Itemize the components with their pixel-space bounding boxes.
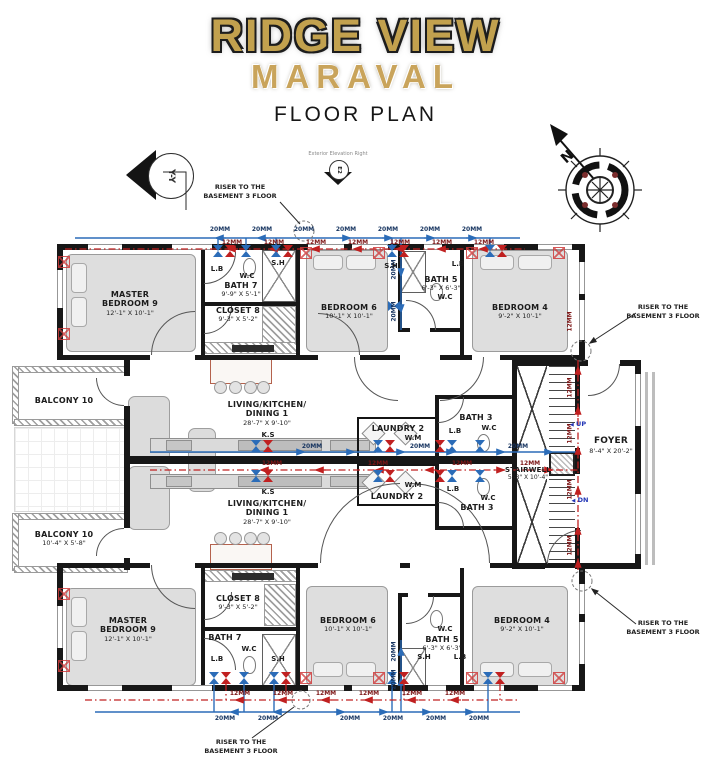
room-name: BEDROOM 4 xyxy=(475,303,565,312)
balcony-top-rail-left xyxy=(12,366,19,424)
room-dims: 28'-7" X 9'-10" xyxy=(212,518,322,527)
window xyxy=(635,494,641,554)
pipe-size-label: 20MM xyxy=(378,226,398,233)
fixture-label-wc: W.C xyxy=(482,424,497,432)
corner-marker xyxy=(58,328,70,340)
stair-landing-upper xyxy=(517,366,547,452)
room-dims: 12'-1" X 10'-1" xyxy=(87,309,173,318)
pipe-size-label: 12MM xyxy=(402,690,422,697)
room-dims: 9'-2" X 10'-1" xyxy=(477,625,567,634)
page-caption: FLOOR PLAN xyxy=(0,103,711,127)
window xyxy=(57,606,63,648)
room-label-bath-7-top: BATH 7 9'-9" X 5'-1" xyxy=(206,281,276,299)
room-name: MASTER BEDROOM 9 xyxy=(87,290,173,309)
bed-pillow xyxy=(518,662,552,677)
wall xyxy=(296,248,300,360)
pipe-size-label: 20MM xyxy=(294,226,314,233)
hot-valve xyxy=(221,672,231,684)
pipe-size-label: 20MM xyxy=(210,226,230,233)
pipe-size-label: 20MM xyxy=(508,443,528,450)
corner-marker xyxy=(58,588,70,600)
room-dims: 6'-3" X 6'-3" xyxy=(410,644,474,653)
dining-chair xyxy=(229,532,242,545)
room-label-foyer: FOYER 8'-4" X 20'-2" xyxy=(579,436,643,455)
fixture-label-lb: L.B xyxy=(211,265,223,273)
cold-valve xyxy=(271,245,281,257)
room-name: BEDROOM 4 xyxy=(477,616,567,625)
hot-valve xyxy=(225,245,235,257)
hot-valve xyxy=(497,245,507,257)
door-arc xyxy=(406,300,436,330)
window xyxy=(579,622,585,664)
room-dims: 9'-3" X 5'-2" xyxy=(203,603,273,612)
cold-valve xyxy=(239,672,249,684)
bed-pillow xyxy=(346,255,376,270)
balcony-terrace xyxy=(14,427,126,512)
pipe-size-label: 20MM xyxy=(258,715,278,722)
window xyxy=(474,685,504,691)
cold-valve xyxy=(475,440,485,452)
wall xyxy=(583,563,641,569)
corner-marker xyxy=(300,672,312,684)
hot-valve xyxy=(399,672,409,684)
cold-valve xyxy=(483,672,493,684)
room-label-closet-8-top: CLOSET 8 9'-3" X 5'-2" xyxy=(203,306,273,324)
wall xyxy=(57,355,130,360)
wall xyxy=(398,248,402,332)
cold-valve xyxy=(241,245,251,257)
cold-valve xyxy=(387,245,397,257)
stair-dn-label: ◀ DN xyxy=(572,496,589,504)
pipe-size-label: 12MM xyxy=(567,311,574,331)
room-name: LAUNDRY 2 xyxy=(352,492,442,501)
fixture-label-sh: S.H xyxy=(384,262,398,270)
hot-valve xyxy=(385,470,395,482)
room-label-bath-3-bottom: BATH 3 xyxy=(447,503,507,512)
window xyxy=(172,244,212,250)
riser-note-line: BASEMENT 3 FLOOR xyxy=(203,192,276,201)
elevation-marker-caption: Exterior Elevation Right xyxy=(308,151,367,157)
pipe-size-label: 12MM xyxy=(452,460,472,467)
corner-marker xyxy=(373,247,385,259)
dn-text: DN xyxy=(578,496,589,504)
wall xyxy=(201,627,298,631)
riser-note-line: RISER TO THE xyxy=(203,183,276,192)
riser-note-line: RISER TO THE xyxy=(204,738,277,747)
room-name: BALCONY 10 xyxy=(9,396,119,405)
dining-chair xyxy=(244,532,257,545)
room-dims: 9'-3" X 5'-2" xyxy=(203,315,273,324)
hot-valve xyxy=(399,245,409,257)
room-name: BATH 3 xyxy=(447,503,507,512)
fixture-label-wc: W.C xyxy=(438,293,453,301)
cold-valve xyxy=(373,440,383,452)
room-label-master-bedroom-9-top: MASTER BEDROOM 9 12'-1" X 10'-1" xyxy=(87,290,173,318)
door-arc xyxy=(354,357,398,401)
room-name: CLOSET 8 xyxy=(203,594,273,603)
pipe-size-label: 12MM xyxy=(359,690,379,697)
hot-valve xyxy=(435,470,445,482)
wall xyxy=(130,355,150,360)
fixture-label-wm: W.M xyxy=(405,434,422,442)
corner-marker xyxy=(58,660,70,672)
pipe-size-label: 12MM xyxy=(262,460,282,467)
dining-chair xyxy=(257,381,270,394)
riser-note-line: BASEMENT 3 FLOOR xyxy=(626,628,699,637)
corner-marker xyxy=(58,256,70,268)
room-name: LIVING/KITCHEN/ xyxy=(212,400,322,409)
room-name: DINING 1 xyxy=(212,508,322,517)
window xyxy=(172,685,212,691)
pipe-size-label: 20MM xyxy=(336,226,356,233)
room-label-bedroom-6-top: BEDROOM 6 10'-1" X 10'-1" xyxy=(304,303,394,321)
room-name: BATH 7 xyxy=(195,633,255,642)
stair-up-label: ◀ UP xyxy=(570,420,586,428)
fixture-label-wc: W.C xyxy=(438,625,453,633)
window xyxy=(57,270,63,308)
room-name: BATH 5 xyxy=(410,635,474,644)
hot-valve xyxy=(435,440,445,452)
riser-note-bottom-right: RISER TO THE BASEMENT 3 FLOOR xyxy=(626,619,699,637)
room-name: BEDROOM 6 xyxy=(304,303,394,312)
fixture-label-ks: K.S xyxy=(261,431,274,439)
fixture-label-sh: S.H xyxy=(271,655,285,663)
floor-plan-page: RIDGE VIEW MARAVAL FLOOR PLAN Y-Y Exteri… xyxy=(0,0,711,768)
left-arrow-icon: ◀ xyxy=(570,422,574,428)
room-label-balcony-10-bottom: BALCONY 10 10'-4" X 5'-8" xyxy=(9,530,119,548)
fixture-label-ks: K.S xyxy=(261,488,274,496)
pipe-size-label: 12MM xyxy=(567,377,574,397)
pipe-size-label: 12MM xyxy=(567,535,574,555)
wall xyxy=(500,355,583,360)
kitchen-sink xyxy=(166,440,192,451)
hot-valve xyxy=(263,440,273,452)
riser-note-line: BASEMENT 3 FLOOR xyxy=(626,312,699,321)
corner-marker xyxy=(466,672,478,684)
riser-note-top-right: RISER TO THE BASEMENT 3 FLOOR xyxy=(626,303,699,321)
window xyxy=(579,584,585,614)
room-label-bath-7-bottom: BATH 7 xyxy=(195,633,255,642)
wall xyxy=(130,563,150,568)
wall xyxy=(195,355,318,360)
dining-chair xyxy=(244,381,257,394)
room-dims: 12'-1" X 10'-1" xyxy=(85,635,171,644)
room-name: MASTER BEDROOM 9 xyxy=(85,616,171,635)
room-name: BALCONY 10 xyxy=(9,530,119,539)
room-dims: 10'-4" X 5'-8" xyxy=(9,539,119,548)
room-dims: 9'-2" X 10'-1" xyxy=(475,312,565,321)
pipe-size-label: 12MM xyxy=(222,239,242,246)
pipe-size-label: 12MM xyxy=(474,239,494,246)
fixture-label-lb: L.B xyxy=(449,427,461,435)
room-name: CLOSET 8 xyxy=(203,306,273,315)
cold-valve xyxy=(213,245,223,257)
wall xyxy=(460,568,464,690)
pipe-size-label: 12MM xyxy=(264,239,284,246)
room-dims: 5'-8" X 10'-4" xyxy=(490,474,566,482)
room-dims: 8'-4" X 20'-2" xyxy=(579,447,643,456)
riser-note-line: RISER TO THE xyxy=(626,303,699,312)
room-name: LIVING/KITCHEN/ xyxy=(212,499,322,508)
wall xyxy=(195,563,318,568)
cold-valve xyxy=(251,470,261,482)
room-name: STAIRWELL xyxy=(490,466,566,474)
pipe-size-label: 20MM xyxy=(340,715,360,722)
pipe-size-label: 12MM xyxy=(230,690,250,697)
pipe-size-label: 20MM xyxy=(426,715,446,722)
riser-note-line: BASEMENT 3 FLOOR xyxy=(204,747,277,756)
door-arc xyxy=(588,364,620,396)
dining-chair xyxy=(229,381,242,394)
riser-note-top-left: RISER TO THE BASEMENT 3 FLOOR xyxy=(203,183,276,201)
room-dims: 28'-7" X 9'-10" xyxy=(212,419,322,428)
fixture-label-wc: W.C xyxy=(242,645,257,653)
section-marker-label: Y-Y xyxy=(166,169,176,183)
room-label-bedroom-6-bottom: BEDROOM 6 10'-1" X 10'-1" xyxy=(303,616,393,634)
room-dims: 10'-1" X 10'-1" xyxy=(303,625,393,634)
closet-shelf xyxy=(232,345,274,352)
fixture-label-wc: W.C xyxy=(481,494,496,502)
bed-pillow xyxy=(518,255,552,270)
entry-step xyxy=(645,372,648,565)
hot-valve xyxy=(263,470,273,482)
window xyxy=(88,685,122,691)
hot-valve xyxy=(495,672,505,684)
hot-valve xyxy=(281,672,291,684)
pipe-size-label: 20MM xyxy=(302,443,322,450)
wall xyxy=(512,360,517,569)
balcony-bottom-rail-top xyxy=(14,513,128,520)
elevation-marker-circle: E2 xyxy=(329,160,349,180)
pipe-size-label: 20MM xyxy=(391,641,398,661)
pipe-size-label: 12MM xyxy=(390,239,410,246)
cold-valve xyxy=(447,440,457,452)
riser-note-bottom: RISER TO THE BASEMENT 3 FLOOR xyxy=(204,738,277,756)
wall xyxy=(57,563,130,568)
dining-chair xyxy=(214,381,227,394)
cold-valve xyxy=(447,470,457,482)
pipe-size-label: 12MM xyxy=(432,239,452,246)
room-label-balcony-10-top: BALCONY 10 xyxy=(9,396,119,405)
room-label-stairwell: STAIRWELL 5'-8" X 10'-4" xyxy=(490,466,566,482)
bed-pillow xyxy=(480,255,514,270)
up-text: UP xyxy=(576,420,586,428)
room-label-living-bottom: LIVING/KITCHEN/ DINING 1 28'-7" X 9'-10" xyxy=(212,499,322,527)
pipe-size-label: 12MM xyxy=(348,239,368,246)
cold-valve xyxy=(475,470,485,482)
fixture-label-lb: L.B xyxy=(447,485,459,493)
room-name: FOYER xyxy=(579,436,643,447)
hot-valve xyxy=(283,245,293,257)
pipe-size-label: 12MM xyxy=(273,690,293,697)
page-title: RIDGE VIEW xyxy=(0,10,711,62)
stair-landing-lower xyxy=(517,479,547,565)
room-label-bath-5-top: BATH 5 6'-3" X 6'-3" xyxy=(409,275,473,293)
fixture-label-wm: W.M xyxy=(405,481,422,489)
room-label-closet-8-bottom: CLOSET 8 9'-3" X 5'-2" xyxy=(203,594,273,612)
kitchen-sink xyxy=(166,476,192,487)
room-label-bedroom-4-bottom: BEDROOM 4 9'-2" X 10'-1" xyxy=(477,616,567,634)
window xyxy=(635,374,641,426)
compass-north-label: N xyxy=(558,147,577,167)
wall xyxy=(400,563,410,568)
cold-valve xyxy=(209,672,219,684)
pipe-size-label: 20MM xyxy=(215,715,235,722)
balcony-top-rail xyxy=(14,366,128,373)
fixture-label-wc: W.C xyxy=(240,272,255,280)
corner-marker xyxy=(373,672,385,684)
room-dims: 9'-9" X 5'-1" xyxy=(206,290,276,299)
room-label-bath-5-bottom: BATH 5 6'-3" X 6'-3" xyxy=(410,635,474,653)
cold-valve xyxy=(485,245,495,257)
room-label-bath-3-top: BATH 3 xyxy=(446,413,506,422)
room-dims: 10'-1" X 10'-1" xyxy=(304,312,394,321)
corner-marker xyxy=(553,672,565,684)
window xyxy=(88,244,122,250)
cold-valve xyxy=(373,470,383,482)
fixture-label-sh: S.H xyxy=(271,259,285,267)
fixture-label-sh: S.H xyxy=(417,653,431,661)
pipe-size-label: 20MM xyxy=(383,715,403,722)
section-marker-circle: Y-Y xyxy=(148,153,194,199)
window xyxy=(579,262,585,294)
cold-valve xyxy=(269,672,279,684)
fixture-label-lb: L.B xyxy=(454,653,466,661)
bed-pillow xyxy=(313,662,343,677)
room-label-laundry-2-bottom: LAUNDRY 2 xyxy=(352,492,442,501)
room-name: BEDROOM 6 xyxy=(303,616,393,625)
corner-marker xyxy=(553,247,565,259)
hot-valve xyxy=(385,440,395,452)
dining-chair xyxy=(214,532,227,545)
bed-pillow xyxy=(71,297,87,327)
pipe-size-label: 20MM xyxy=(420,226,440,233)
elevation-marker-label: E2 xyxy=(336,166,342,174)
window xyxy=(538,685,572,691)
bed-pillow xyxy=(313,255,343,270)
room-name: LAUNDRY 2 xyxy=(353,424,443,433)
entry-step xyxy=(652,372,655,565)
pipe-size-label: 12MM xyxy=(445,690,465,697)
room-label-living-top: LIVING/KITCHEN/ DINING 1 28'-7" X 9'-10" xyxy=(212,400,322,428)
corner-marker xyxy=(300,247,312,259)
room-name: BATH 3 xyxy=(446,413,506,422)
room-dims: 6'-3" X 6'-3" xyxy=(409,284,473,293)
bed-pillow xyxy=(71,263,87,293)
room-name: DINING 1 xyxy=(212,409,322,418)
cold-valve xyxy=(251,440,261,452)
window xyxy=(579,300,585,340)
pipe-size-label: 20MM xyxy=(391,669,398,689)
fixture-label-lb: L.B xyxy=(452,260,464,268)
bed-pillow xyxy=(346,662,376,677)
room-label-laundry-2-top: LAUNDRY 2 xyxy=(353,424,443,433)
pipe-size-label: 20MM xyxy=(469,715,489,722)
corner-marker xyxy=(466,247,478,259)
pipe-size-label: 20MM xyxy=(462,226,482,233)
pipe-size-label: 20MM xyxy=(410,443,430,450)
page-subtitle: MARAVAL xyxy=(0,58,711,96)
room-name: BATH 5 xyxy=(409,275,473,284)
room-label-bedroom-4-top: BEDROOM 4 9'-2" X 10'-1" xyxy=(475,303,565,321)
pipe-size-label: 12MM xyxy=(368,460,388,467)
compass-icon: N xyxy=(538,116,653,234)
left-arrow-icon: ◀ xyxy=(572,498,576,504)
pipe-size-label: 20MM xyxy=(252,226,272,233)
pipe-size-label: 12MM xyxy=(306,239,326,246)
wall xyxy=(575,360,580,412)
window xyxy=(428,685,446,691)
room-label-master-bedroom-9-bottom: MASTER BEDROOM 9 12'-1" X 10'-1" xyxy=(85,616,171,644)
room-name: BATH 7 xyxy=(206,281,276,290)
balcony-divider-rail xyxy=(14,419,128,426)
pipe-size-label: 12MM xyxy=(316,690,336,697)
wall xyxy=(124,406,130,528)
riser-note-line: RISER TO THE xyxy=(626,619,699,628)
dining-chair xyxy=(257,532,270,545)
fixture-label-lb: L.B xyxy=(211,655,223,663)
door-arc xyxy=(204,638,236,670)
closet-shelf xyxy=(232,573,274,580)
